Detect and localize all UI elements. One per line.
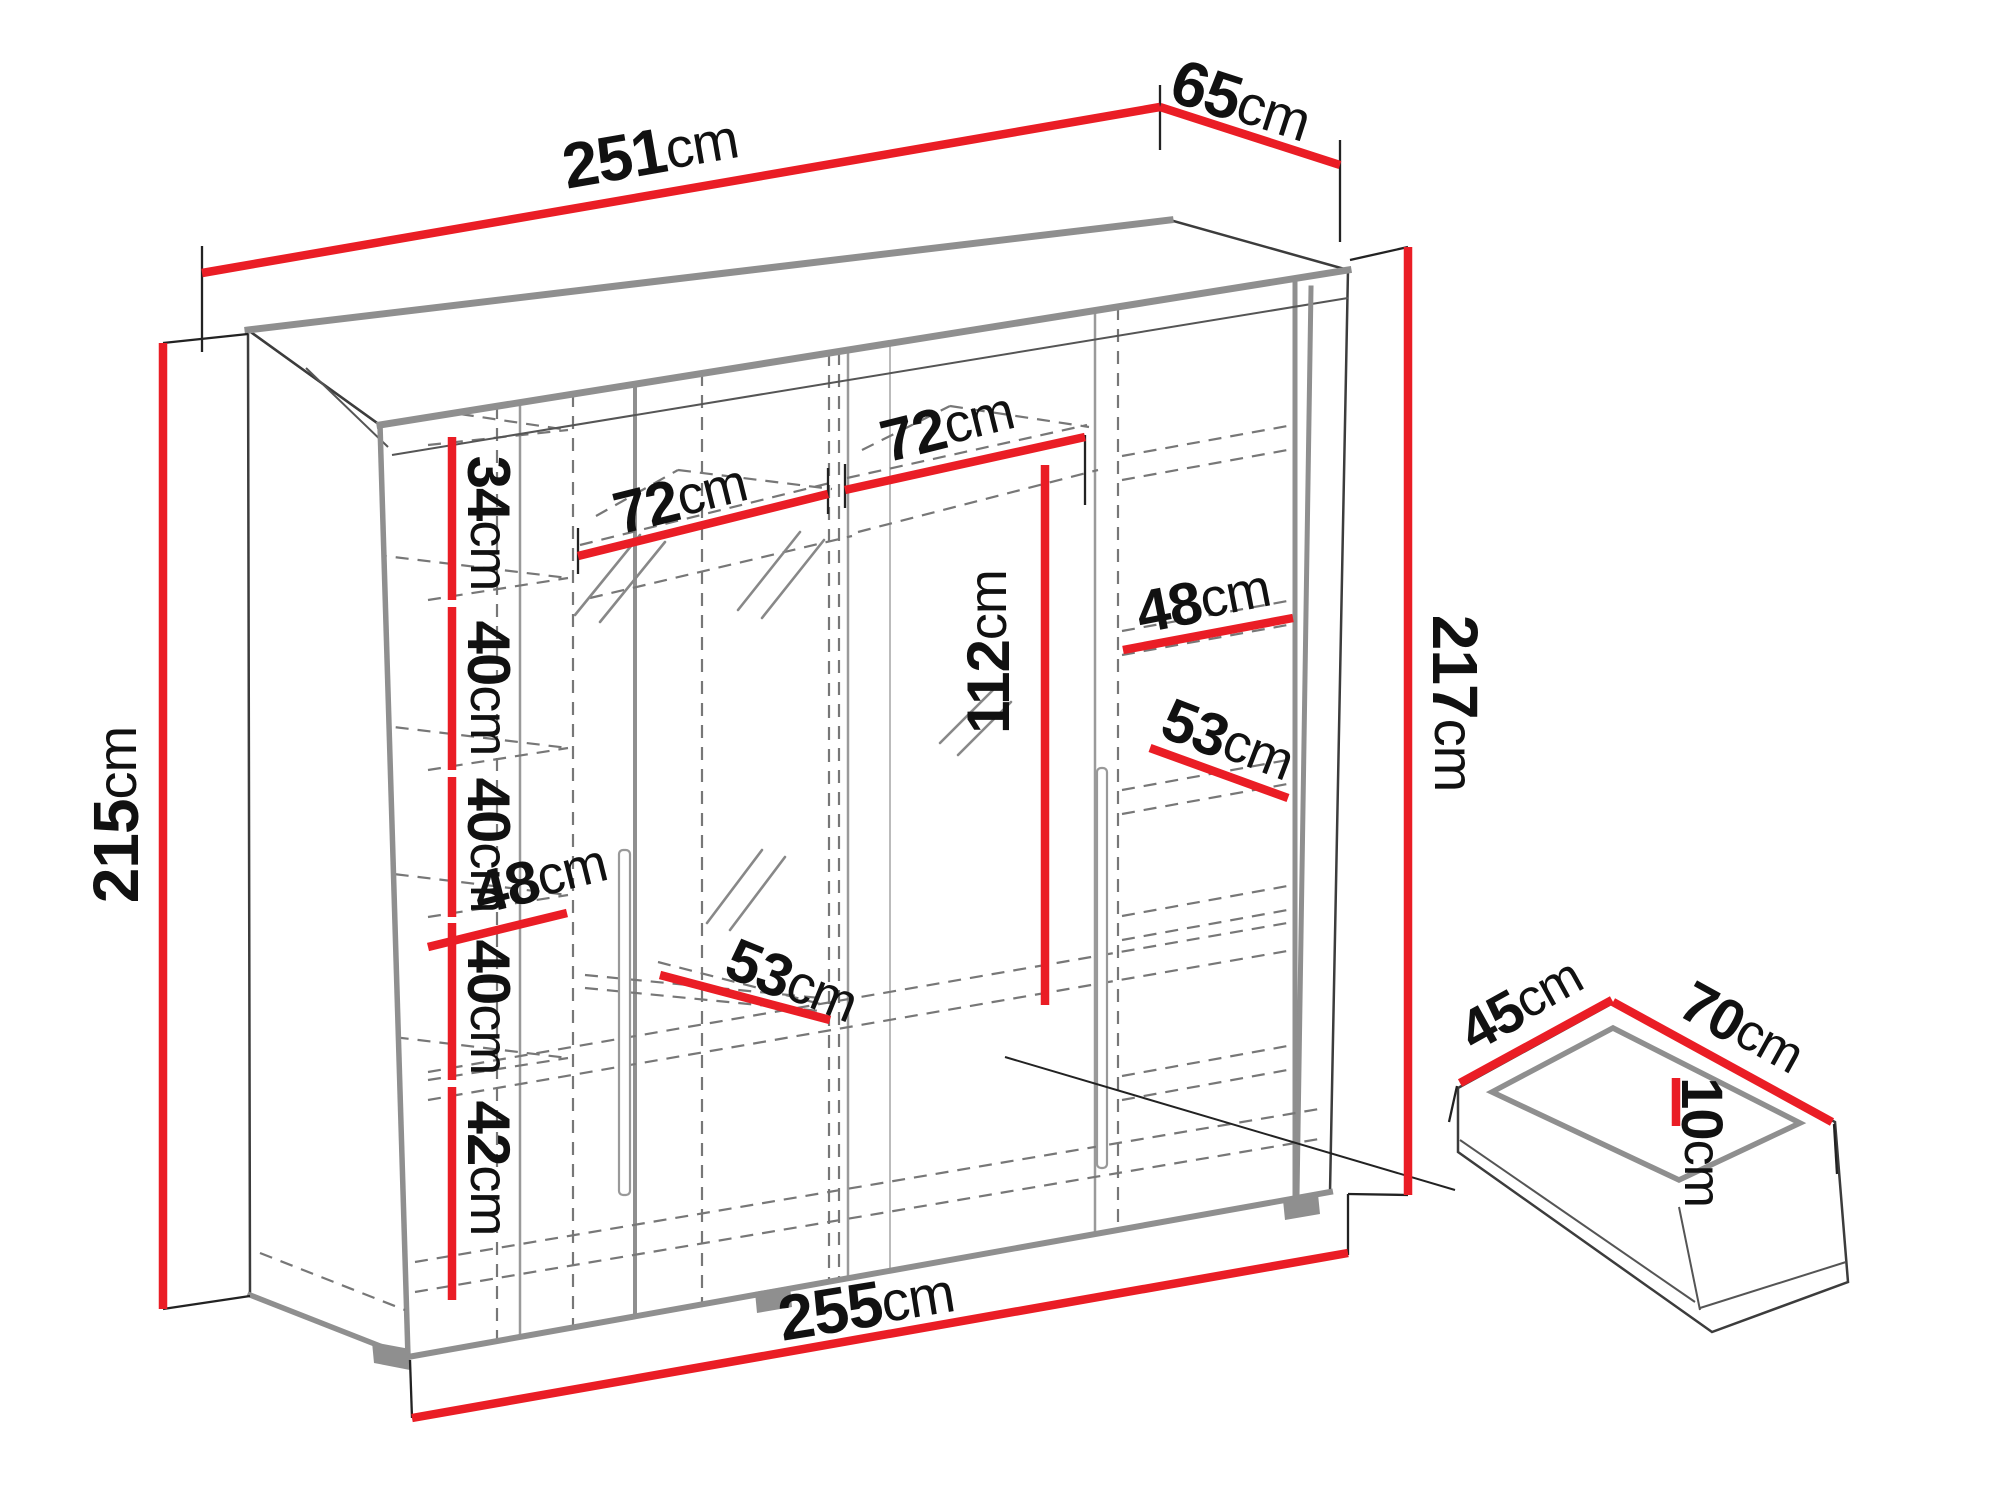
dim-label-112: 112cm	[955, 570, 1022, 734]
dim-label-40c: 40cm	[456, 940, 523, 1075]
dim-label-65: 65cm	[1162, 45, 1319, 157]
dim-label-34: 34cm	[456, 456, 523, 591]
dim-label-40a: 40cm	[456, 621, 523, 756]
left-door-handle	[619, 850, 630, 1195]
wardrobe-body	[248, 220, 1348, 1357]
dimension-diagram: 251cm 65cm 215cm 217cm 255cm 34cm 40cm 4…	[0, 0, 2000, 1499]
dim-label-42: 42cm	[456, 1101, 523, 1236]
dim-label-217: 217cm	[1419, 615, 1491, 791]
wardrobe-diagram-canvas: 251cm 65cm 215cm 217cm 255cm 34cm 40cm 4…	[0, 0, 2000, 1499]
dim-label-10: 10cm	[1670, 1077, 1735, 1207]
right-door-handle	[1097, 768, 1107, 1168]
dim-label-215: 215cm	[80, 727, 152, 903]
